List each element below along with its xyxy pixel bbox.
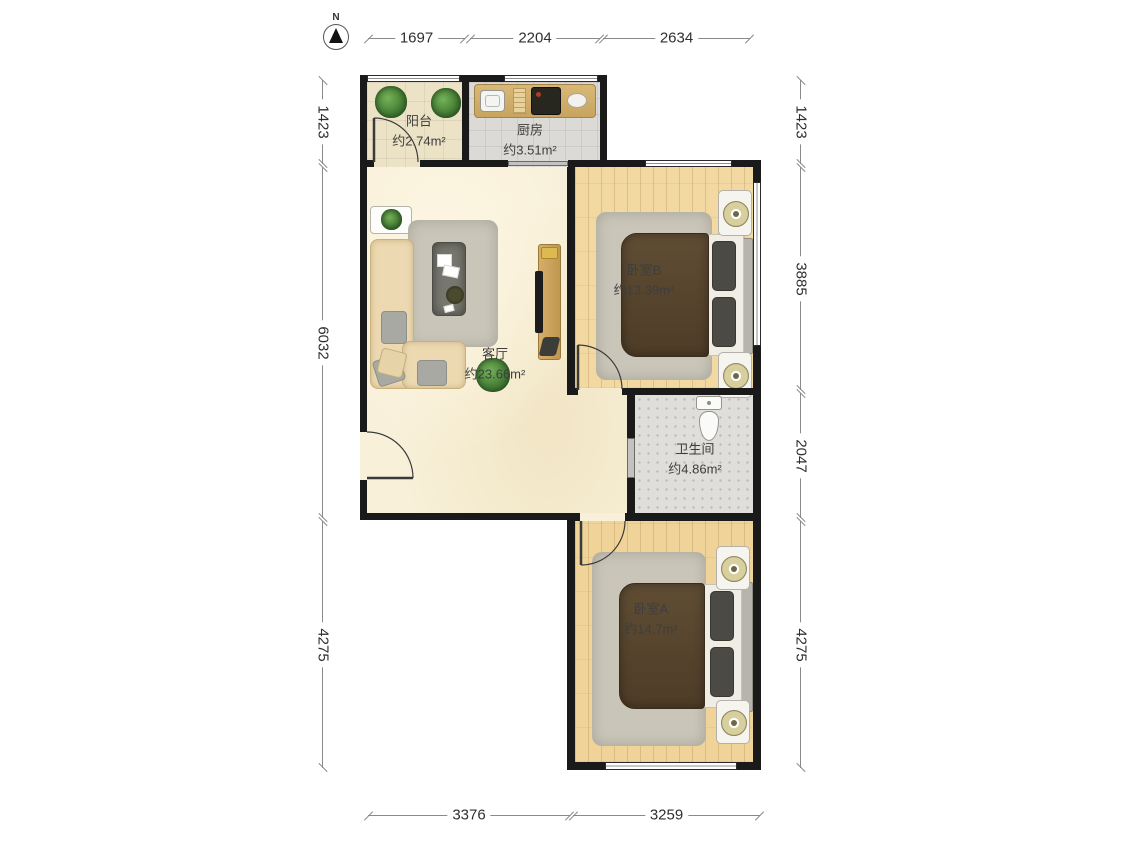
dimension-left-2: 6032	[322, 167, 323, 518]
wall-segment	[600, 82, 607, 167]
room-label-balcony: 阳台 约2.74m²	[392, 112, 445, 151]
dimension-value: 3376	[447, 807, 490, 824]
kitchen-sliding-door	[508, 161, 568, 166]
dimension-value: 1697	[395, 30, 438, 47]
wall-segment	[568, 160, 645, 167]
window	[605, 762, 737, 770]
room-name: 卫生间	[668, 440, 721, 460]
dimension-value: 4275	[315, 622, 332, 667]
cutting-board	[513, 88, 526, 114]
sofa-cushion	[381, 311, 407, 344]
wall-segment	[567, 521, 575, 770]
north-compass: N	[318, 13, 354, 50]
bathroom-sliding-door	[627, 438, 635, 478]
dimension-value: 3885	[793, 256, 810, 301]
bedroom-a-door-arc	[579, 519, 627, 567]
north-label: N	[318, 13, 354, 23]
lamp-icon	[723, 363, 749, 389]
room-label-bedroom-a: 卧室A 约14.7m²	[624, 600, 677, 639]
tv-icon	[535, 271, 543, 333]
dimension-value: 1423	[315, 99, 332, 144]
dimension-value: 2634	[655, 30, 698, 47]
wall-segment	[462, 82, 469, 167]
basin	[567, 93, 587, 108]
dimension-left-1: 1423	[322, 80, 323, 164]
wall-segment	[737, 762, 761, 770]
window	[367, 75, 460, 82]
toilet	[696, 396, 722, 410]
lamp-icon	[723, 201, 749, 227]
room-area: 约2.74m²	[392, 131, 445, 151]
dimension-value: 1423	[793, 99, 810, 144]
dimension-value: 2204	[513, 30, 556, 47]
wall-segment	[622, 388, 761, 395]
dimension-right-1: 1423	[800, 80, 801, 164]
dimension-right-2: 3885	[800, 167, 801, 390]
sofa-cushion	[417, 360, 447, 386]
plant-icon	[381, 209, 402, 230]
dimension-left-3: 4275	[322, 521, 323, 768]
room-name: 阳台	[392, 112, 445, 132]
dimension-value: 4275	[793, 622, 810, 667]
room-area: 约23.66m²	[465, 364, 526, 384]
room-label-bedroom-b: 卧室B 约13.39m²	[614, 261, 675, 300]
room-name: 厨房	[503, 121, 556, 141]
bed-pillow	[712, 241, 736, 291]
lamp-icon	[721, 556, 747, 582]
dimension-bottom-1: 3376	[368, 815, 570, 816]
room-area: 约4.86m²	[668, 459, 721, 479]
bed-pillow	[710, 647, 734, 697]
room-area: 约3.51m²	[503, 140, 556, 160]
room-name: 卧室A	[624, 600, 677, 620]
wall-segment	[627, 478, 635, 514]
dimension-right-4: 4275	[800, 521, 801, 768]
wall-segment	[567, 167, 575, 395]
dimension-right-3: 2047	[800, 393, 801, 518]
wall-segment	[567, 762, 605, 770]
room-name: 客厅	[465, 345, 526, 365]
bed-pillow	[710, 591, 734, 641]
window	[645, 160, 732, 167]
room-label-bathroom: 卫生间 约4.86m²	[668, 440, 721, 479]
dimension-top-3: 2634	[603, 38, 750, 39]
wall-segment	[627, 395, 635, 438]
room-label-kitchen: 厨房 约3.51m²	[503, 121, 556, 160]
lamp-icon	[721, 710, 747, 736]
wall-segment	[360, 513, 575, 520]
room-area: 约14.7m²	[624, 619, 677, 639]
window	[753, 182, 761, 346]
entry-door-arc	[365, 430, 415, 482]
dimension-bottom-2: 3259	[573, 815, 760, 816]
room-label-living: 客厅 约23.66m²	[465, 345, 526, 384]
stove	[531, 87, 561, 115]
wall-segment	[360, 82, 367, 432]
window	[504, 75, 598, 82]
bed-pillow	[712, 297, 736, 347]
bowl	[446, 286, 464, 304]
dimension-value: 6032	[315, 320, 332, 365]
dimension-value: 2047	[793, 433, 810, 478]
room-name: 卧室B	[614, 261, 675, 281]
dimension-top-2: 2204	[470, 38, 600, 39]
kitchen-sink	[480, 90, 505, 112]
av-device	[541, 247, 558, 259]
wall-segment	[625, 513, 761, 521]
wall-segment	[420, 160, 508, 167]
north-arrow-icon	[323, 24, 349, 50]
bedroom-b-door-arc	[575, 343, 624, 392]
dimension-top-1: 1697	[368, 38, 465, 39]
floor-plan-canvas: N	[0, 0, 1125, 844]
room-area: 约13.39m²	[614, 280, 675, 300]
north-triangle	[329, 28, 343, 43]
dimension-value: 3259	[645, 807, 688, 824]
bed-headboard	[741, 582, 753, 712]
